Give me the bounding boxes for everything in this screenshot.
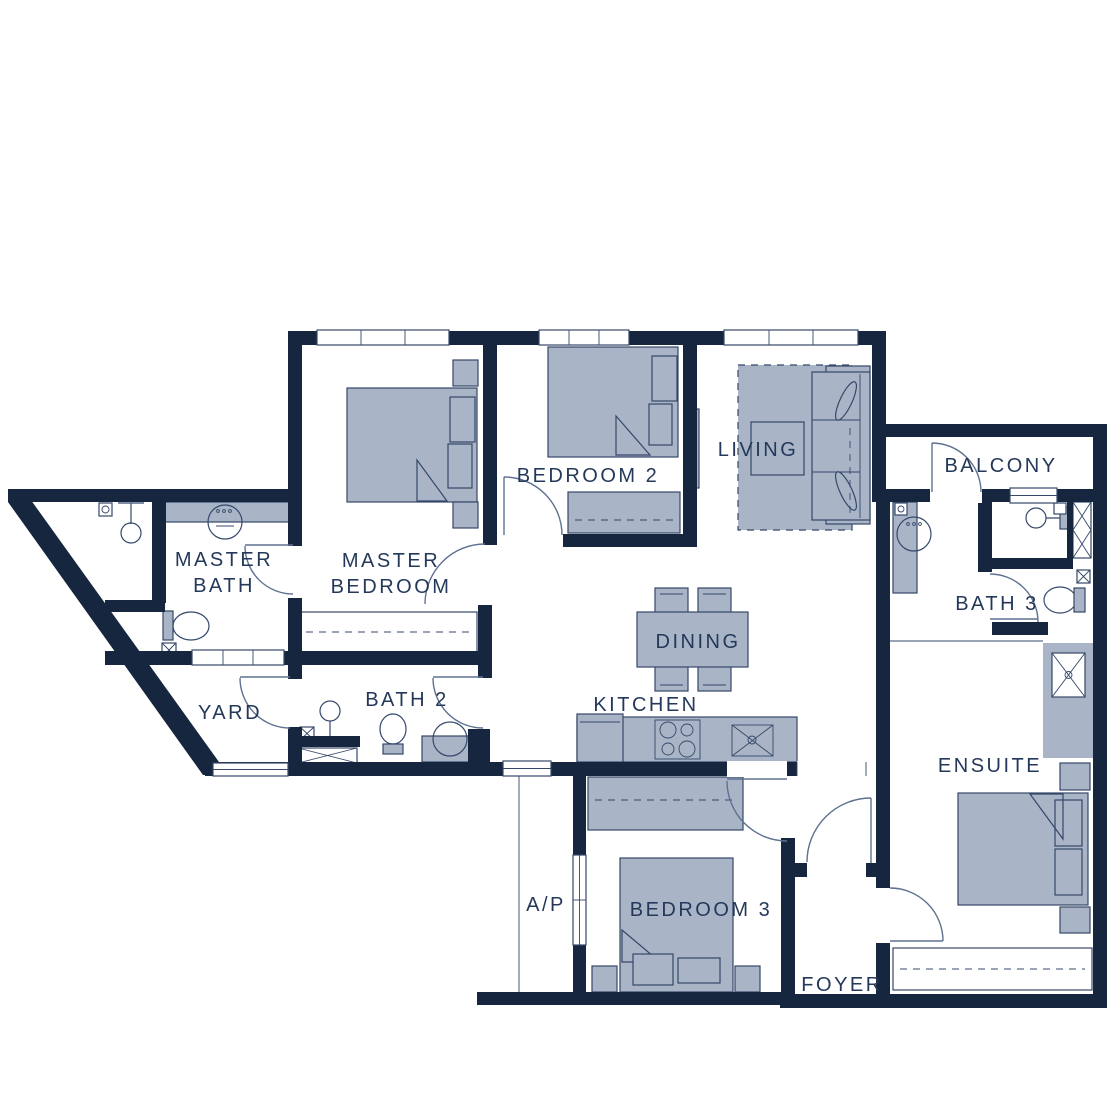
toilet-tank <box>1074 588 1085 612</box>
label-living: LIVING <box>718 439 799 461</box>
label-master-bedroom-line1: MASTER <box>342 550 440 572</box>
shower-head <box>121 523 141 543</box>
vanity-counter <box>893 502 917 593</box>
window <box>724 330 858 345</box>
wall <box>780 994 1106 1008</box>
wall <box>683 331 697 547</box>
wall <box>1067 502 1073 558</box>
label-ap: A/P <box>526 894 566 916</box>
window <box>192 650 284 665</box>
pillow <box>633 954 673 985</box>
ensuite-furniture <box>893 643 1093 990</box>
toilet-tank <box>383 744 403 754</box>
dining-chair <box>698 665 731 691</box>
cased-opening <box>797 761 866 777</box>
wall <box>781 838 795 1005</box>
label-master-bedroom-line2: BEDROOM <box>331 576 452 598</box>
foyer-door <box>807 798 871 862</box>
nightstand <box>735 966 760 992</box>
wall <box>477 992 795 1005</box>
shower-half-wall <box>296 736 360 747</box>
door-opening <box>930 488 982 503</box>
wall <box>105 600 165 612</box>
wall <box>985 558 1073 569</box>
label-bath2: BATH 2 <box>365 689 449 711</box>
nightstand <box>1060 763 1090 790</box>
wall <box>1093 424 1107 1008</box>
nightstand <box>592 966 617 992</box>
shower-head <box>320 701 340 721</box>
wall <box>573 762 586 855</box>
wall <box>872 489 1106 502</box>
sofa-body <box>812 372 870 520</box>
bedroom2-furniture <box>548 347 680 533</box>
fridge <box>577 714 623 762</box>
shower-head <box>1026 508 1046 528</box>
dining-chair <box>698 588 731 614</box>
wall <box>563 534 697 547</box>
wall <box>288 598 302 653</box>
floor-drain <box>895 503 907 515</box>
wall <box>866 863 876 877</box>
toilet-tank <box>163 611 173 640</box>
window <box>539 330 629 345</box>
floor-plan-page: MASTER BATH MASTER BEDROOM BEDROOM 2 LIV… <box>0 0 1108 1120</box>
wall <box>872 424 1106 437</box>
label-kitchen: KITCHEN <box>593 694 698 716</box>
dining-chair <box>655 588 688 614</box>
pillow <box>448 444 472 488</box>
toilet-bowl <box>380 714 406 744</box>
pillow <box>450 397 475 442</box>
pillow <box>652 356 677 401</box>
floor-drain <box>99 503 112 516</box>
wall <box>483 345 497 545</box>
nightstand <box>453 502 478 528</box>
wall <box>876 502 890 888</box>
label-dining: DINING <box>656 631 741 653</box>
label-bedroom3: BEDROOM 3 <box>630 899 773 921</box>
dining-chair <box>655 665 688 691</box>
label-master-bath-line1: MASTER <box>175 549 273 571</box>
wall <box>468 729 490 763</box>
label-foyer: FOYER <box>801 974 882 996</box>
wall <box>872 331 886 502</box>
label-bath3: BATH 3 <box>955 593 1039 615</box>
pillow <box>1055 800 1082 846</box>
wall <box>205 762 797 776</box>
label-balcony: BALCONY <box>944 455 1057 477</box>
pillow <box>678 958 720 983</box>
wall <box>288 665 302 679</box>
label-ensuite: ENSUITE <box>938 755 1042 777</box>
label-yard: YARD <box>198 702 262 724</box>
shower-door <box>1073 502 1091 558</box>
wardrobe <box>568 492 680 533</box>
wall <box>105 651 492 665</box>
wardrobe <box>588 777 743 830</box>
wall <box>478 605 492 678</box>
window <box>317 330 449 345</box>
wall <box>573 945 586 992</box>
pillow <box>1055 849 1082 895</box>
wall <box>288 331 302 546</box>
kitchen-furniture <box>577 714 797 762</box>
master-bedroom-furniture <box>300 360 478 652</box>
nightstand <box>453 360 478 386</box>
toilet-bowl <box>1044 587 1076 613</box>
floor-plan-drawing: MASTER BATH MASTER BEDROOM BEDROOM 2 LIV… <box>0 0 1108 1120</box>
label-bedroom2: BEDROOM 2 <box>517 465 660 487</box>
door-opening <box>727 761 787 777</box>
toilet-bowl <box>173 612 209 640</box>
floor-drain <box>1054 503 1066 514</box>
label-master-bath-line2: BATH <box>193 575 255 597</box>
wall <box>152 500 166 603</box>
ensuite-door <box>890 888 943 941</box>
nightstand <box>1060 907 1090 933</box>
diagonal-wall <box>8 489 219 775</box>
wall <box>992 622 1048 635</box>
pillow <box>649 404 672 445</box>
